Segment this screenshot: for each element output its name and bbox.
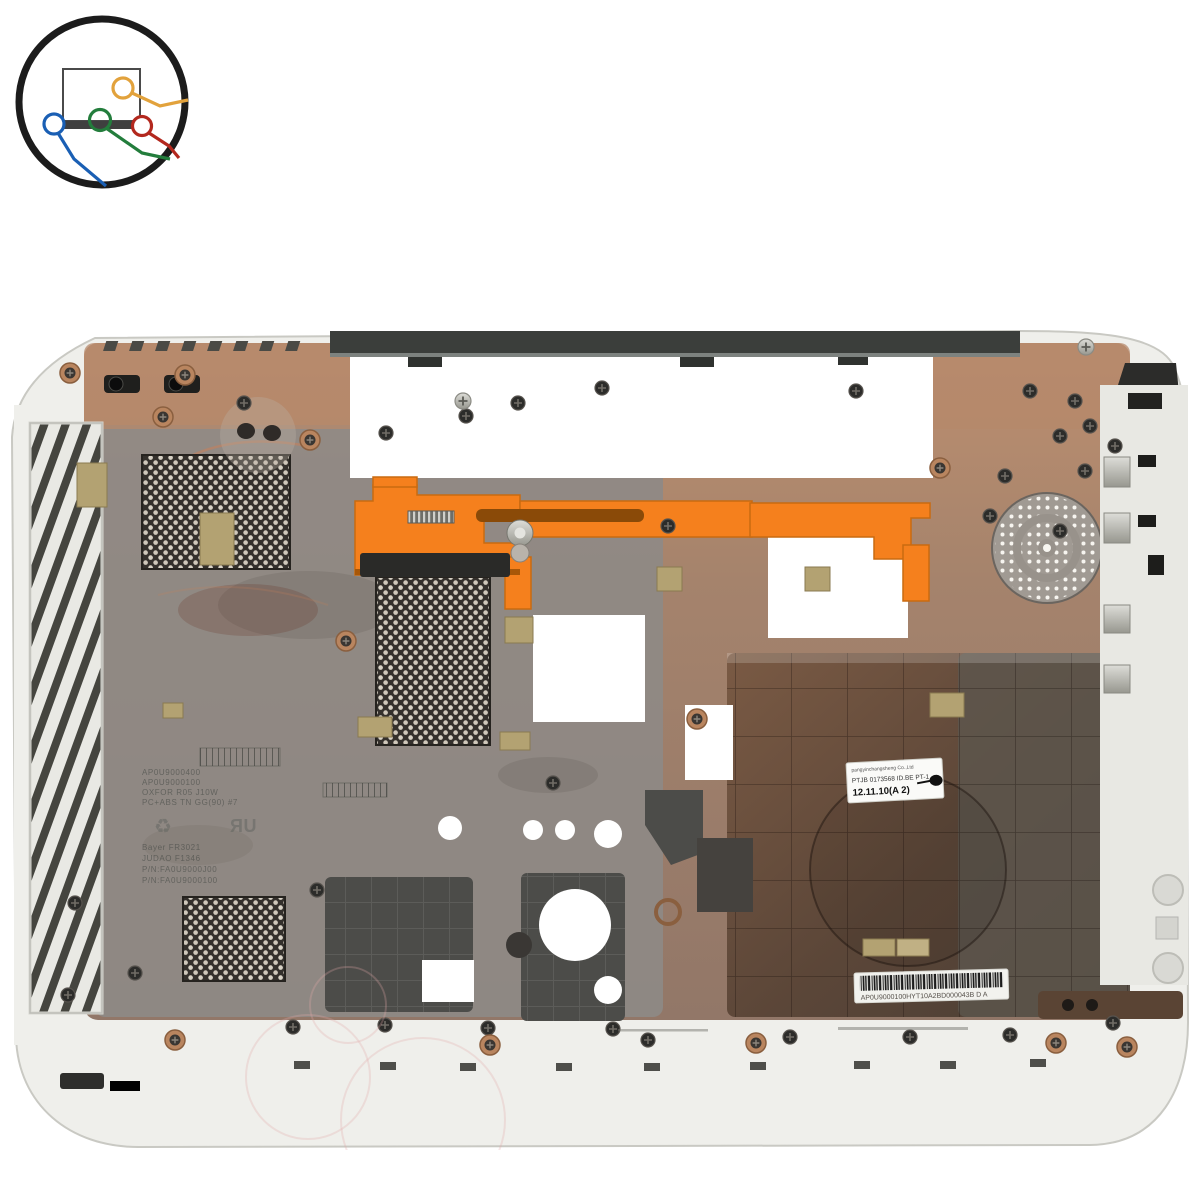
round-plate <box>220 397 296 473</box>
emi-clip <box>1104 665 1130 693</box>
emi-pad <box>863 939 895 956</box>
molded-hole <box>1153 875 1183 905</box>
emi-clip <box>1104 513 1130 543</box>
lock-slot <box>60 1073 104 1089</box>
molded-line: PC+ABS TN GG(90) #7 <box>142 798 238 807</box>
molded-line: AP0U9000100 <box>142 778 201 787</box>
molded-line: OXFOR R05 J10W <box>142 788 218 797</box>
molded-line: JUDAO F1346 <box>142 854 201 863</box>
black-bracket-bar <box>360 553 510 577</box>
molded-slot <box>1156 917 1178 939</box>
rubber-foot-recess <box>506 932 532 958</box>
molded-line: P/N:FA0U9000100 <box>142 876 218 885</box>
red-plug-icon <box>133 117 152 136</box>
silver-screw <box>455 393 471 409</box>
emi-clip <box>1104 605 1130 633</box>
gpu-vent-mesh <box>376 577 490 745</box>
molded-line: Bayer FR3021 <box>142 843 201 852</box>
molded-ruler <box>323 783 387 797</box>
latch-slot <box>476 509 644 522</box>
bottom-vent-mesh <box>183 897 285 981</box>
molded-ruler <box>200 748 280 766</box>
store-logo <box>12 12 192 192</box>
date-sticker: pangyinchangsheng Co.,Ltd PTJB 0173568 I… <box>846 758 944 803</box>
silver-screw <box>1078 339 1094 355</box>
barcode-sticker: AP0U9000100HYT10A2BD000043B D A <box>854 969 1009 1003</box>
speaker-grille <box>992 493 1102 603</box>
molded-line: P/N:FA0U9000J00 <box>142 865 217 874</box>
orange-plug-icon <box>113 78 133 98</box>
recycle-icon: ♻ <box>154 816 173 838</box>
bay-oval-emboss <box>810 774 1006 966</box>
ul-mark-icon: ЯU <box>230 816 257 836</box>
product-page: AP0U9000400 AP0U9000100 OXFOR R05 J10W P… <box>0 0 1200 1200</box>
bay-edge-strip <box>1038 991 1183 1019</box>
laptop-bottom-case-photo: AP0U9000400 AP0U9000100 OXFOR R05 J10W P… <box>8 305 1192 1150</box>
right-port-frame <box>1100 385 1188 985</box>
blue-plug-icon <box>44 114 64 134</box>
emi-pad <box>897 939 929 956</box>
port-cutout <box>1128 393 1162 409</box>
emi-clip <box>1104 457 1130 487</box>
molded-hole <box>1153 953 1183 983</box>
molded-line: AP0U9000400 <box>142 768 201 777</box>
latch-spring <box>408 511 454 523</box>
